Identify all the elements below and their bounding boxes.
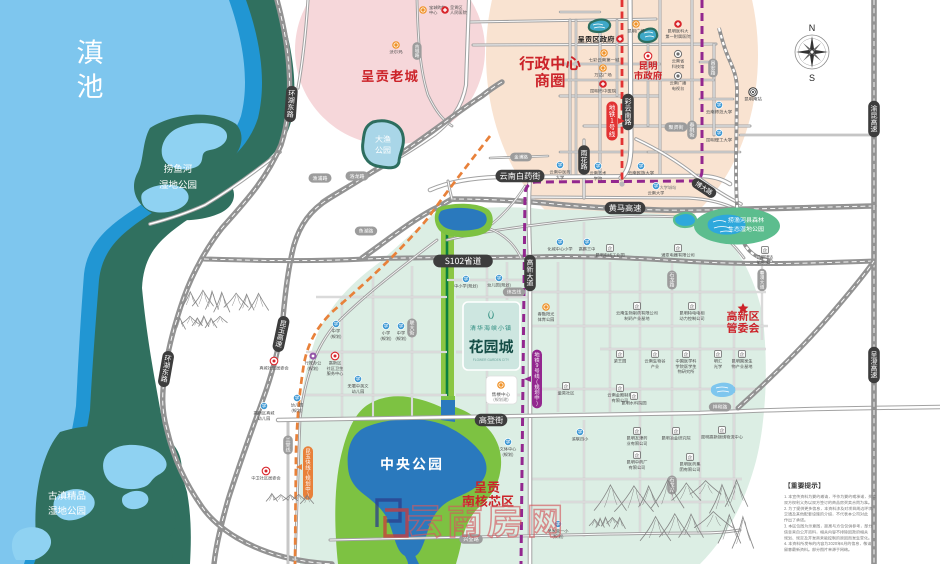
svg-text:呈澄高速: 呈澄高速 <box>871 350 878 381</box>
svg-text:光学: 光学 <box>714 364 722 370</box>
svg-text:学: 学 <box>596 164 601 170</box>
svg-text:留意最新资料。部分图片来源于网络。: 留意最新资料。部分图片来源于网络。 <box>784 547 852 553</box>
svg-text:高新大道: 高新大道 <box>527 258 534 289</box>
svg-text:黄马高速: 黄马高速 <box>609 202 642 214</box>
svg-text:管委会: 管委会 <box>727 320 760 336</box>
svg-text:学: 学 <box>464 277 469 283</box>
svg-text:池: 池 <box>77 65 104 104</box>
svg-text:高登街: 高登街 <box>479 414 504 426</box>
svg-text:春漫大道: 春漫大道 <box>760 271 765 291</box>
svg-text:学: 学 <box>717 103 722 109</box>
svg-text:企: 企 <box>564 384 569 390</box>
svg-text:企: 企 <box>674 429 679 435</box>
svg-text:有限公司: 有限公司 <box>629 465 646 471</box>
svg-text:金浦路: 金浦路 <box>514 155 528 161</box>
svg-text:通变电器有限公司: 通变电器有限公司 <box>661 253 695 259</box>
svg-text:企: 企 <box>653 352 658 358</box>
svg-text:第一附属医院: 第一附属医院 <box>665 34 691 40</box>
svg-text:联大街: 联大街 <box>409 320 414 337</box>
svg-text:昆明高新锦绣物流中心: 昆明高新锦绣物流中心 <box>701 435 744 441</box>
svg-text:(规划): (规划) <box>330 334 342 340</box>
svg-text:企: 企 <box>690 304 695 310</box>
svg-text:房: 房 <box>487 493 523 545</box>
svg-text:企: 企 <box>684 352 689 358</box>
svg-text:沃尔玛: 沃尔玛 <box>389 50 403 56</box>
svg-text:云南民族大学: 云南民族大学 <box>628 171 655 177</box>
svg-text:学: 学 <box>334 322 339 328</box>
svg-text:企: 企 <box>618 352 623 358</box>
svg-text:学: 学 <box>558 240 563 246</box>
svg-text:纬古线: 纬古线 <box>507 289 522 296</box>
svg-text:人民医院: 人民医院 <box>450 10 468 16</box>
svg-text:企: 企 <box>635 453 640 459</box>
svg-text:溪联四小: 溪联四小 <box>572 437 590 443</box>
svg-text:学: 学 <box>399 324 404 330</box>
svg-text:大学: 大学 <box>556 175 564 181</box>
svg-text:云南白药街: 云南白药街 <box>500 170 541 182</box>
svg-text:企: 企 <box>676 246 681 252</box>
svg-text:S: S <box>809 73 815 83</box>
svg-text:真城社区居委会: 真城社区居委会 <box>259 366 289 372</box>
svg-text:生态湿地公园: 生态湿地公园 <box>728 224 764 233</box>
svg-text:大渔: 大渔 <box>375 134 391 145</box>
svg-text:学: 学 <box>506 440 511 446</box>
svg-text:昆明冶金研究院: 昆明冶金研究院 <box>661 436 691 442</box>
svg-text:捞渔河县森林: 捞渔河县森林 <box>728 215 764 224</box>
svg-text:(规划): (规划) <box>307 366 319 372</box>
svg-text:呈贡老城: 呈贡老城 <box>361 65 419 85</box>
svg-text:【重要提示】: 【重要提示】 <box>784 480 825 490</box>
svg-text:云: 云 <box>407 493 443 545</box>
svg-text:学: 学 <box>497 276 502 282</box>
svg-text:物产业基地: 物产业基地 <box>732 364 754 370</box>
svg-text:企: 企 <box>608 246 613 252</box>
svg-text:学: 学 <box>639 164 644 170</box>
svg-text:学: 学 <box>578 430 583 436</box>
svg-text:清华海峡小镇: 清华海峡小镇 <box>470 323 512 332</box>
svg-text:地铁9号线(规划中): 地铁9号线(规划中) <box>534 350 540 407</box>
svg-text:电视台: 电视台 <box>672 86 685 92</box>
svg-text:呈贡区政府: 呈贡区政府 <box>578 34 616 45</box>
svg-text:企: 企 <box>716 352 721 358</box>
svg-text:企: 企 <box>740 352 745 358</box>
svg-text:(规划): (规划) <box>291 408 303 414</box>
svg-text:祥和路: 祥和路 <box>713 404 728 411</box>
svg-text:雨花路: 雨花路 <box>581 148 588 172</box>
svg-text:幼儿园: 幼儿园 <box>258 416 271 422</box>
svg-text:N: N <box>809 23 816 33</box>
svg-text:科技馆: 科技馆 <box>672 64 685 70</box>
svg-text:(规划): (规划) <box>502 452 514 458</box>
svg-text:学: 学 <box>558 163 563 169</box>
svg-text:中心: 中心 <box>429 10 438 16</box>
svg-text:产业: 产业 <box>651 364 659 370</box>
svg-text:聚贤街: 聚贤街 <box>668 124 683 131</box>
svg-text:捞鱼河: 捞鱼河 <box>164 161 193 175</box>
svg-text:(规划): (规划) <box>395 336 407 342</box>
svg-text:大学城站: 大学城站 <box>660 185 677 191</box>
svg-text:昆明水科院园: 昆明水科院园 <box>621 401 646 407</box>
svg-text:商圈: 商圈 <box>534 69 565 91</box>
svg-text:制药产业基地: 制药产业基地 <box>624 316 650 322</box>
svg-text:学: 学 <box>262 404 267 410</box>
svg-text:学: 学 <box>654 184 659 190</box>
svg-text:中小学(规划): 中小学(规划) <box>454 284 478 290</box>
svg-text:童昊社区: 童昊社区 <box>558 391 575 397</box>
svg-text:学: 学 <box>384 324 389 330</box>
svg-text:公园: 公园 <box>375 145 391 156</box>
svg-text:服务中心: 服务中心 <box>327 371 345 377</box>
svg-text:渝昆高速: 渝昆高速 <box>871 104 878 135</box>
svg-text:鱼湖路: 鱼湖路 <box>359 228 374 235</box>
svg-text:(规划建): (规划建) <box>493 397 509 403</box>
svg-text:兰堂线: 兰堂线 <box>285 437 290 454</box>
svg-text:幼儿园(规划): 幼儿园(规划) <box>487 283 511 289</box>
svg-text:FLOWER GARDEN CITY: FLOWER GARDEN CITY <box>473 358 510 362</box>
svg-text:矿泉水厂: 矿泉水厂 <box>757 260 774 266</box>
svg-text:(规划): (规划) <box>380 336 392 342</box>
svg-text:企: 企 <box>720 428 725 434</box>
svg-text:中央公园: 中央公园 <box>380 454 444 474</box>
svg-text:网: 网 <box>527 493 563 545</box>
svg-text:学: 学 <box>717 131 722 137</box>
svg-text:企: 企 <box>688 455 693 461</box>
svg-text:湿地公园: 湿地公园 <box>48 503 86 517</box>
svg-text:S102省道: S102省道 <box>445 255 482 267</box>
svg-text:高薪三中: 高薪三中 <box>579 247 596 253</box>
svg-text:湿地公园: 湿地公园 <box>159 177 197 191</box>
svg-text:彩云南路: 彩云南路 <box>625 97 632 128</box>
svg-text:业有限公司: 业有限公司 <box>627 441 648 447</box>
svg-text:企: 企 <box>635 304 640 310</box>
svg-text:云南师范大学: 云南师范大学 <box>706 110 733 116</box>
svg-text:物研究所: 物研究所 <box>678 369 695 375</box>
svg-text:企: 企 <box>632 394 637 400</box>
svg-text:化城中心小学: 化城中心小学 <box>547 247 572 253</box>
svg-text:洛龙路: 洛龙路 <box>349 173 364 180</box>
svg-text:昆明理工大学: 昆明理工大学 <box>706 138 733 144</box>
svg-text:昆明电线工业园: 昆明电线工业园 <box>595 253 624 259</box>
svg-text:动力控制公司: 动力控制公司 <box>679 316 704 322</box>
svg-text:企: 企 <box>618 386 623 392</box>
svg-text:渔浦路: 渔浦路 <box>312 175 327 182</box>
svg-text:花园城: 花园城 <box>468 336 513 357</box>
svg-text:云南大学: 云南大学 <box>648 191 665 197</box>
svg-text:昆明广场: 昆明广场 <box>627 29 645 35</box>
svg-text:学: 学 <box>585 240 590 246</box>
svg-text:南: 南 <box>447 493 483 545</box>
svg-text:春融街: 春融街 <box>689 122 694 139</box>
svg-text:学院: 学院 <box>594 176 603 182</box>
svg-text:体育公园: 体育公园 <box>538 317 555 323</box>
svg-text:古滇精品: 古滇精品 <box>48 488 86 502</box>
svg-text:昌宏路: 昌宏路 <box>710 60 715 77</box>
svg-text:企: 企 <box>763 248 768 254</box>
svg-text:梁王园: 梁王园 <box>614 359 627 365</box>
svg-text:昆明南站: 昆明南站 <box>744 97 762 103</box>
svg-text:石龙路: 石龙路 <box>669 272 674 289</box>
svg-text:学: 学 <box>295 396 300 402</box>
svg-text:市政府: 市政府 <box>634 68 663 82</box>
svg-text:万达广场: 万达广场 <box>594 73 612 79</box>
svg-text:昆明市中医院: 昆明市中医院 <box>590 89 617 95</box>
svg-text:幼儿园: 幼儿园 <box>352 389 365 395</box>
svg-text:七彩云南第一城: 七彩云南第一城 <box>589 58 620 64</box>
svg-text:古城路: 古城路 <box>415 44 420 59</box>
svg-text:企: 企 <box>635 429 640 435</box>
svg-text:学: 学 <box>356 377 361 383</box>
svg-text:中卫社区居委会: 中卫社区居委会 <box>251 476 281 482</box>
svg-text:团有限公司: 团有限公司 <box>680 467 701 473</box>
